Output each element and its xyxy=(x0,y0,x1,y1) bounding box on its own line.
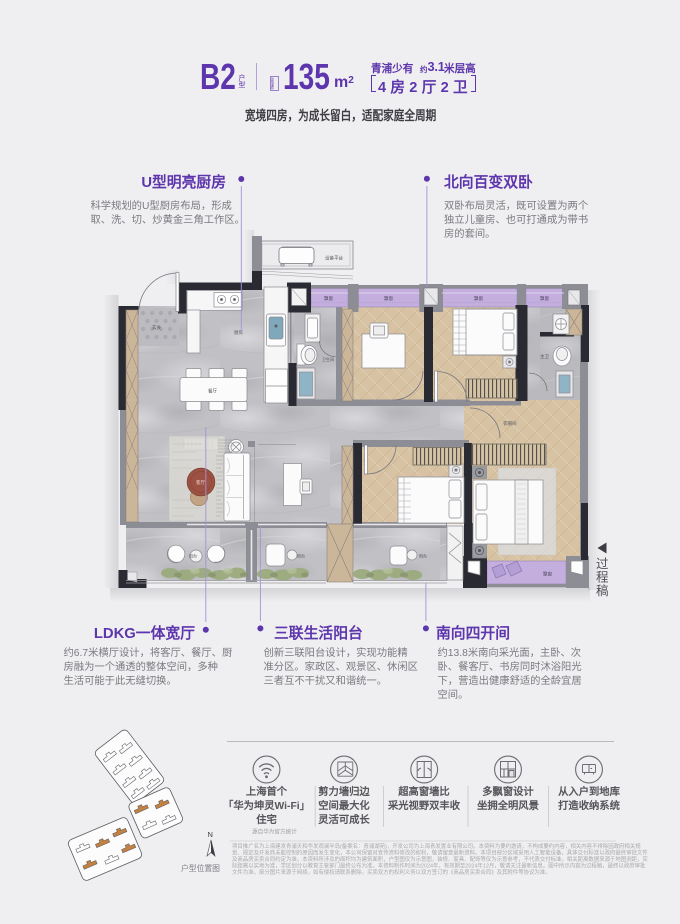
svg-text:客厅: 客厅 xyxy=(196,479,205,486)
svg-text:衣帽间: 衣帽间 xyxy=(503,420,517,427)
svg-text:餐厅: 餐厅 xyxy=(208,388,217,395)
svg-text:厨房: 厨房 xyxy=(234,329,243,336)
svg-text:飘窗: 飘窗 xyxy=(543,571,552,578)
svg-text:飘窗: 飘窗 xyxy=(384,295,393,302)
svg-text:过: 过 xyxy=(596,557,609,571)
svg-text:飘窗: 飘窗 xyxy=(540,295,549,302)
svg-text:阳台: 阳台 xyxy=(189,553,197,559)
svg-text:卫生间: 卫生间 xyxy=(322,356,334,362)
svg-text:玄关: 玄关 xyxy=(152,324,161,331)
svg-text:稿: 稿 xyxy=(596,583,609,598)
svg-text:飘窗: 飘窗 xyxy=(474,295,483,302)
svg-text:设备平台: 设备平台 xyxy=(325,255,343,262)
svg-text:主卫: 主卫 xyxy=(540,353,549,359)
svg-text:程: 程 xyxy=(596,570,609,585)
svg-text:阳台: 阳台 xyxy=(297,553,305,559)
svg-text:阳台: 阳台 xyxy=(419,553,427,559)
svg-text:飘窗: 飘窗 xyxy=(324,295,333,302)
svg-text:N: N xyxy=(208,830,213,839)
